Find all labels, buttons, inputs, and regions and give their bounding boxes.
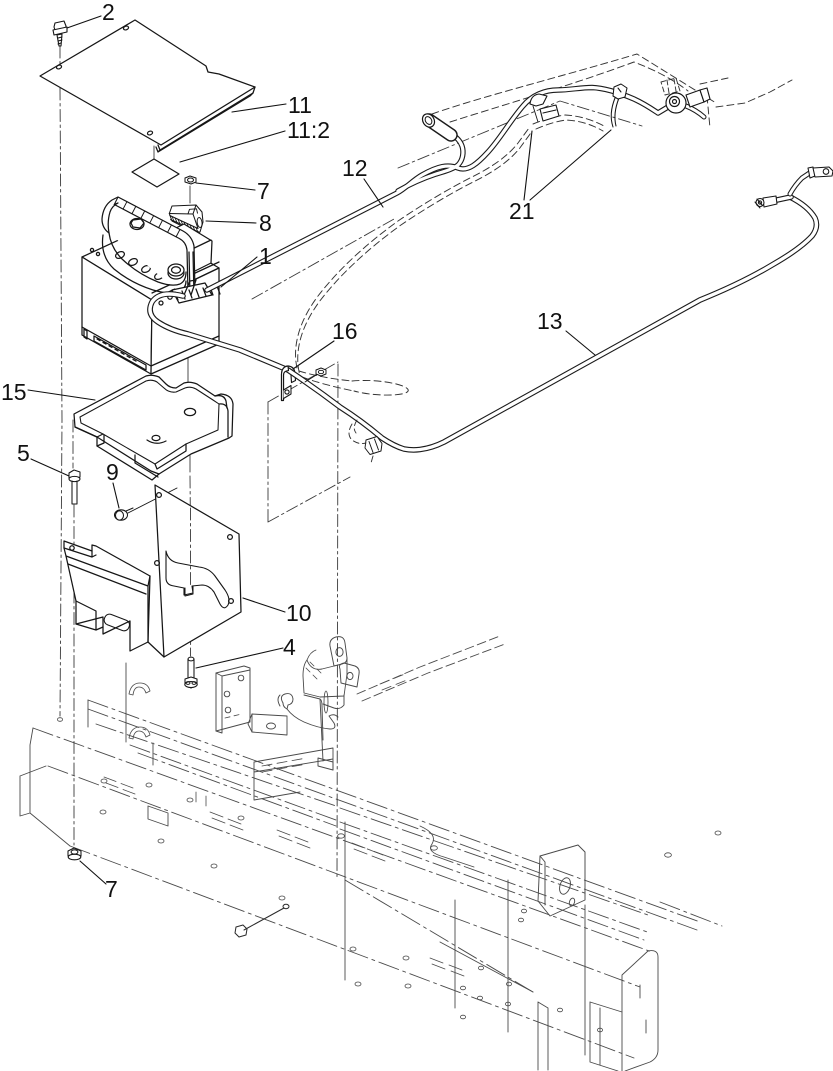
svg-text:11: 11 <box>288 92 312 118</box>
svg-text:8: 8 <box>259 210 272 236</box>
svg-text:9: 9 <box>106 459 119 485</box>
svg-text:10: 10 <box>286 600 312 626</box>
svg-text:15: 15 <box>1 379 27 405</box>
svg-text:13: 13 <box>537 308 563 334</box>
svg-text:5: 5 <box>17 440 30 466</box>
svg-text:1: 1 <box>259 243 272 269</box>
svg-text:11:2: 11:2 <box>287 117 330 143</box>
svg-text:7: 7 <box>257 178 270 204</box>
svg-text:2: 2 <box>102 0 115 25</box>
svg-text:4: 4 <box>283 634 296 660</box>
svg-text:12: 12 <box>342 155 368 181</box>
svg-text:7: 7 <box>105 876 118 902</box>
svg-text:21: 21 <box>509 198 535 224</box>
svg-text:16: 16 <box>332 318 358 344</box>
